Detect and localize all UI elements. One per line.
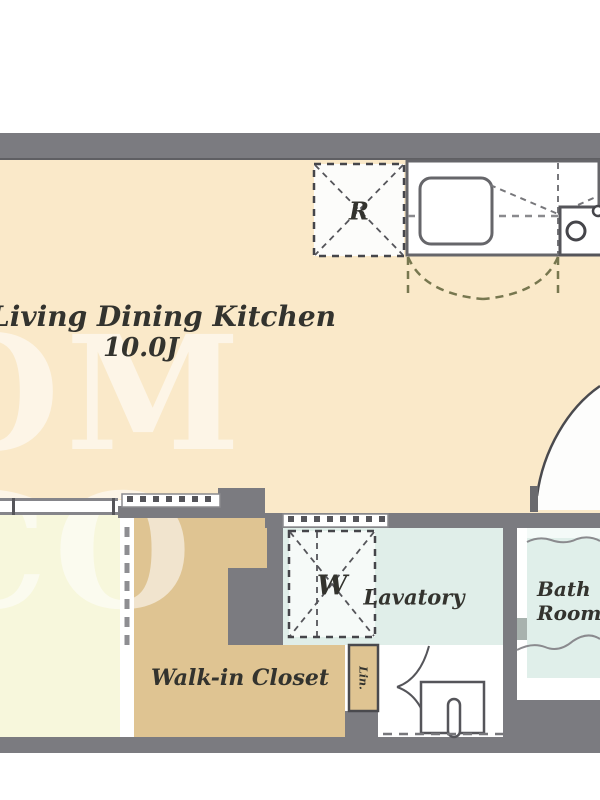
refrigerator-symbol: R bbox=[349, 197, 369, 226]
linen-label: Lin. bbox=[357, 666, 370, 690]
bedroom-window-tick-1 bbox=[12, 498, 15, 515]
hallway-floor bbox=[378, 645, 503, 745]
ldk-label: Living Dining Kitchen bbox=[0, 300, 336, 333]
wall-closet-vertical bbox=[267, 513, 283, 570]
bedroom-window-tick-2 bbox=[112, 498, 115, 515]
walk-in-closet-label: Walk-in Closet bbox=[151, 665, 329, 691]
wall-lin-block bbox=[345, 711, 378, 737]
wall-bottom bbox=[0, 737, 600, 753]
wall-mid-block bbox=[218, 488, 265, 518]
bath-room-label-line2: Room bbox=[537, 601, 600, 625]
bedroom-window bbox=[0, 498, 118, 515]
bath-room-label-line1: Bath bbox=[537, 577, 600, 601]
bath-room-label: Bath Room bbox=[537, 577, 600, 625]
walk-in-closet-floor-ext bbox=[267, 645, 345, 737]
ldk-size-label: 10.0J bbox=[103, 333, 179, 363]
bath-floor-bottom-band bbox=[527, 678, 600, 700]
wall-mid-right bbox=[265, 513, 600, 528]
wall-top bbox=[0, 133, 600, 160]
washer-symbol: W bbox=[317, 571, 347, 602]
wall-closet-L-block bbox=[228, 568, 283, 645]
lavatory-label: Lavatory bbox=[363, 585, 464, 610]
floor-plan: OM CO bbox=[0, 0, 600, 800]
